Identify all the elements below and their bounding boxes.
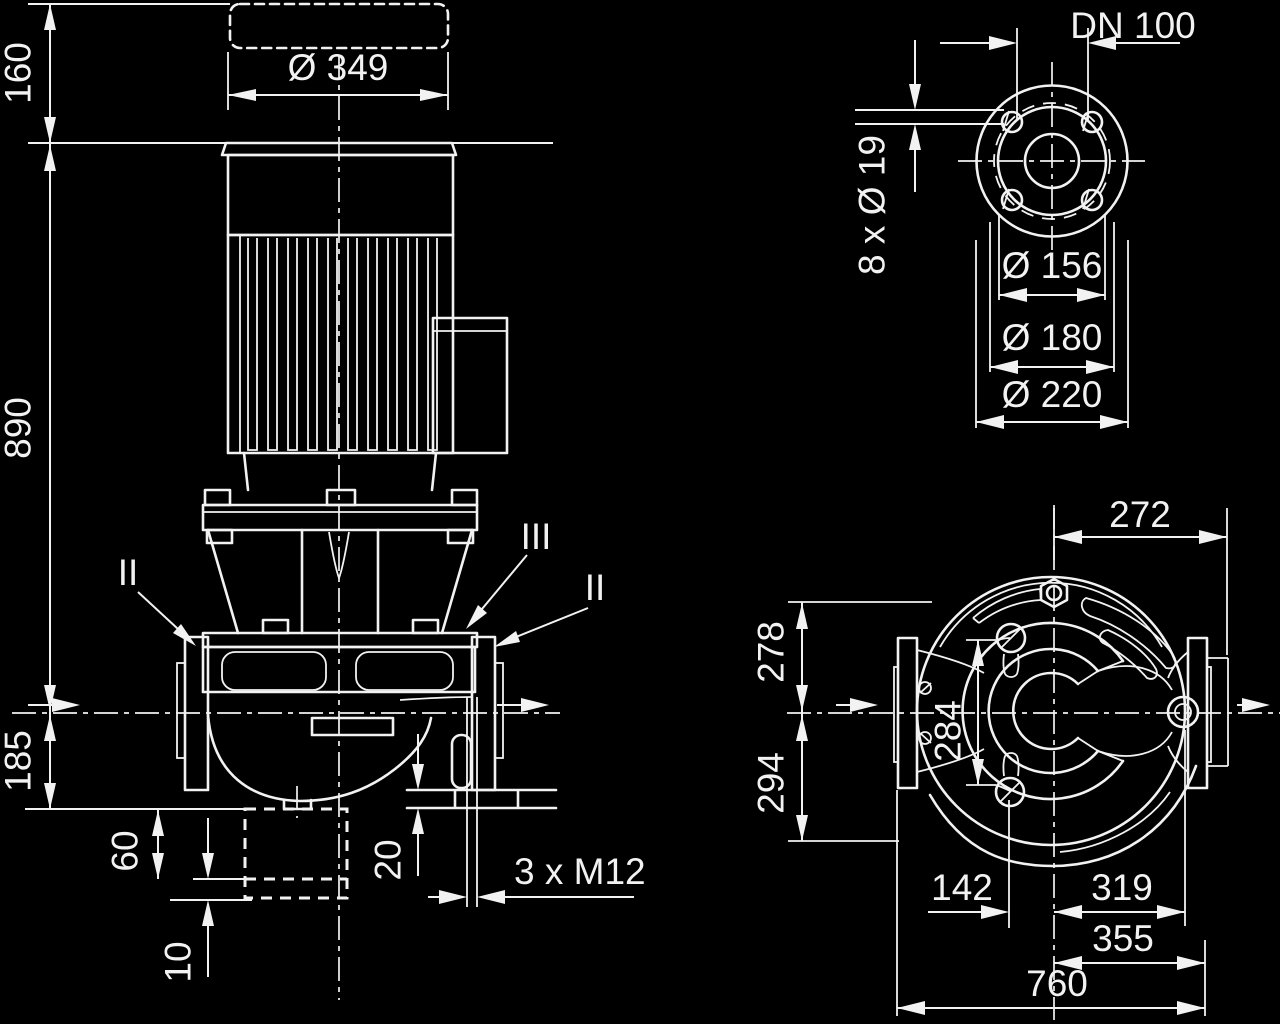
section-II-right: II <box>585 567 606 608</box>
dim-60: 60 <box>105 809 165 879</box>
dim-label-284: 284 <box>928 700 969 762</box>
plan-suction-arrow <box>836 698 878 712</box>
elevation-view: 160 890 185 Ø 349 60 10 <box>0 4 646 1000</box>
plan-discharge-arrow <box>1237 698 1270 712</box>
dim-m12: 3 x M12 <box>428 851 646 904</box>
dim-label-294: 294 <box>751 752 792 814</box>
section-II-left: II <box>118 552 139 593</box>
dim-label-220: Ø 220 <box>1002 374 1103 415</box>
dim-label-355: 355 <box>1092 918 1154 959</box>
dim-label-278: 278 <box>751 621 792 683</box>
section-label-right: II <box>494 567 605 647</box>
motor-fins <box>228 235 453 453</box>
dim-label-60: 60 <box>105 830 146 871</box>
plan-view: 272 278 294 284 142 <box>751 494 1280 1020</box>
page: { "colors": { "background": "#000000", "… <box>0 0 1280 1024</box>
technical-drawing: 160 890 185 Ø 349 60 10 <box>0 0 1280 1024</box>
section-III: III <box>521 516 552 557</box>
dim-label-890: 890 <box>0 397 39 459</box>
dim-label-272: 272 <box>1109 494 1171 535</box>
grout-line <box>170 879 252 900</box>
dim-dn100: DN 100 <box>940 5 1196 120</box>
dim-label-10: 10 <box>158 941 199 982</box>
dim-label-156: Ø 156 <box>1002 245 1103 286</box>
section-label-mid: III <box>466 516 551 629</box>
section-label-left: II <box>118 552 196 646</box>
dim-label-349: Ø 349 <box>288 47 389 88</box>
dim-label-185: 185 <box>0 730 39 792</box>
dim-label-8x19: 8 x Ø 19 <box>852 135 893 275</box>
dim-label-760: 760 <box>1026 963 1088 1004</box>
dim-284: 284 <box>928 638 1011 791</box>
dim-label-m12: 3 x M12 <box>514 851 646 892</box>
motor-skirt <box>244 453 436 490</box>
motor-flange <box>203 490 477 543</box>
dim-label-180: Ø 180 <box>1002 317 1103 358</box>
dim-label-20: 20 <box>368 839 409 880</box>
dim-label-142: 142 <box>931 867 993 908</box>
motor-body <box>228 155 453 235</box>
dim-motor-diameter: Ø 349 <box>228 47 448 110</box>
seal-housing <box>203 633 477 692</box>
dim-label-160: 160 <box>0 42 39 104</box>
dim-label-319: 319 <box>1091 867 1153 908</box>
flange-view: DN 100 8 x Ø 19 Ø 156 Ø 180 <box>852 5 1196 429</box>
dim-label-dn100: DN 100 <box>1070 5 1195 46</box>
dim-bolt-holes: 8 x Ø 19 <box>852 40 1005 275</box>
discharge-flow-arrow <box>497 698 549 712</box>
motor-cap-dashed <box>230 4 448 48</box>
suction-flow-arrow <box>28 698 80 712</box>
foundation-outline <box>245 809 347 898</box>
terminal-box <box>433 318 507 453</box>
lantern <box>208 530 472 633</box>
dim-272: 272 <box>1054 494 1227 655</box>
